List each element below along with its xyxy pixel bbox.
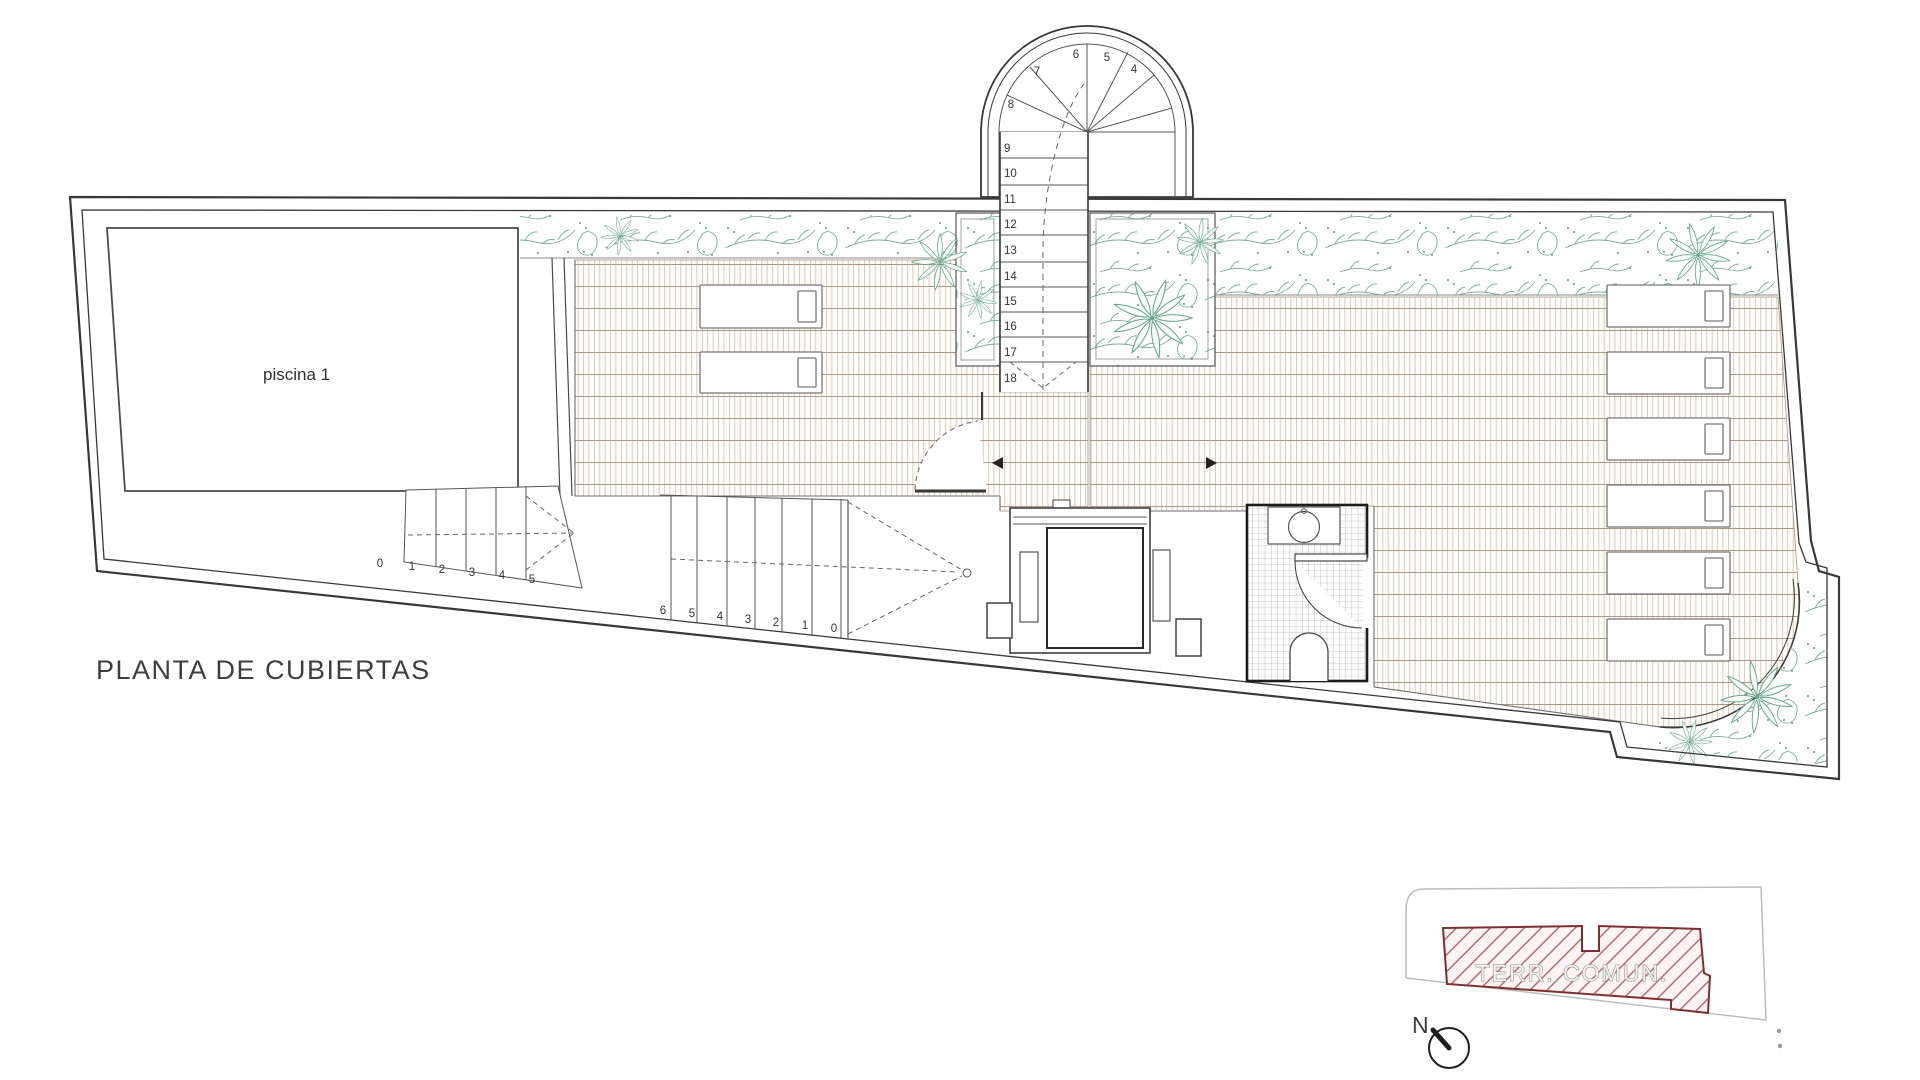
- arrow-origin-circle: [963, 569, 971, 577]
- svg-text:3: 3: [745, 614, 751, 626]
- pool-deck-wall: [552, 258, 572, 496]
- svg-text:2: 2: [773, 617, 779, 629]
- svg-text:1: 1: [802, 620, 808, 632]
- roof-plan-drawing: piscina 1 4 5 6 7 8: [0, 0, 1920, 1080]
- lounger-pillow: [1705, 424, 1723, 454]
- svg-text:5: 5: [1104, 52, 1110, 64]
- pool-label: piscina 1: [263, 365, 330, 384]
- lounger-pillow: [1705, 558, 1723, 588]
- svg-text:16: 16: [1004, 321, 1017, 333]
- svg-text:10: 10: [1004, 168, 1017, 180]
- north-arrow: N: [1412, 1012, 1469, 1068]
- planter-strip-top-left: [520, 215, 958, 258]
- svg-text:4: 4: [1131, 64, 1138, 76]
- lounger-pillow: [798, 358, 816, 387]
- svg-text:6: 6: [660, 605, 666, 617]
- svg-text:4: 4: [717, 611, 724, 623]
- svg-text:8: 8: [1008, 99, 1014, 111]
- svg-text:18: 18: [1004, 373, 1017, 385]
- svg-text:17: 17: [1004, 347, 1017, 359]
- svg-text:0: 0: [377, 558, 383, 570]
- svg-text:9: 9: [1004, 143, 1010, 155]
- pool-stair-flight: 0 1 2 3 4 5: [377, 486, 582, 588]
- washbasin: [1268, 507, 1340, 544]
- terrace-stair-flight: 6 5 4 3 2 1 0: [660, 495, 971, 638]
- svg-text:0: 0: [831, 623, 837, 635]
- elevator-shaft: [1010, 500, 1150, 653]
- lounger-pillow: [1705, 358, 1723, 388]
- svg-text:4: 4: [499, 570, 506, 582]
- common-terrace-label: TERR. COMUN.: [1476, 960, 1669, 986]
- roof-vent-small-1: [1176, 619, 1201, 656]
- pool: piscina 1: [107, 228, 518, 491]
- north-label: N: [1412, 1012, 1429, 1038]
- drawing-mark-dot: [1777, 1029, 1781, 1033]
- roof-vent-right-of-elevator: [1153, 550, 1170, 621]
- lounger-pillow: [1705, 291, 1723, 321]
- roof-vent-small-2: [987, 603, 1012, 638]
- svg-text:5: 5: [689, 608, 695, 620]
- page-title: PLANTA DE CUBIERTAS: [96, 655, 431, 685]
- terrace-flight-numbers: 6 5 4 3 2 1 0: [660, 605, 837, 635]
- svg-text:11: 11: [1004, 194, 1016, 206]
- svg-text:3: 3: [469, 567, 475, 579]
- svg-text:13: 13: [1004, 245, 1017, 257]
- svg-text:1: 1: [409, 561, 415, 573]
- svg-text:15: 15: [1004, 296, 1017, 308]
- toilet: [1290, 633, 1328, 681]
- planter-strip-top-right: [1215, 214, 1778, 295]
- key-plan: TERR. COMUN. N: [1406, 887, 1782, 1068]
- svg-text:7: 7: [1034, 66, 1040, 78]
- svg-text:6: 6: [1073, 49, 1079, 61]
- svg-text:12: 12: [1004, 219, 1017, 231]
- stair-direction-arrow: [671, 502, 962, 634]
- lounger-pillow: [798, 291, 816, 322]
- lounger-pillow: [1705, 491, 1723, 521]
- svg-text:14: 14: [1004, 271, 1017, 283]
- svg-text:2: 2: [439, 564, 445, 576]
- drawing-mark-dot: [1778, 1044, 1782, 1048]
- svg-text:5: 5: [529, 574, 535, 586]
- lounger-pillow: [1705, 625, 1723, 655]
- bathroom: [1247, 505, 1372, 681]
